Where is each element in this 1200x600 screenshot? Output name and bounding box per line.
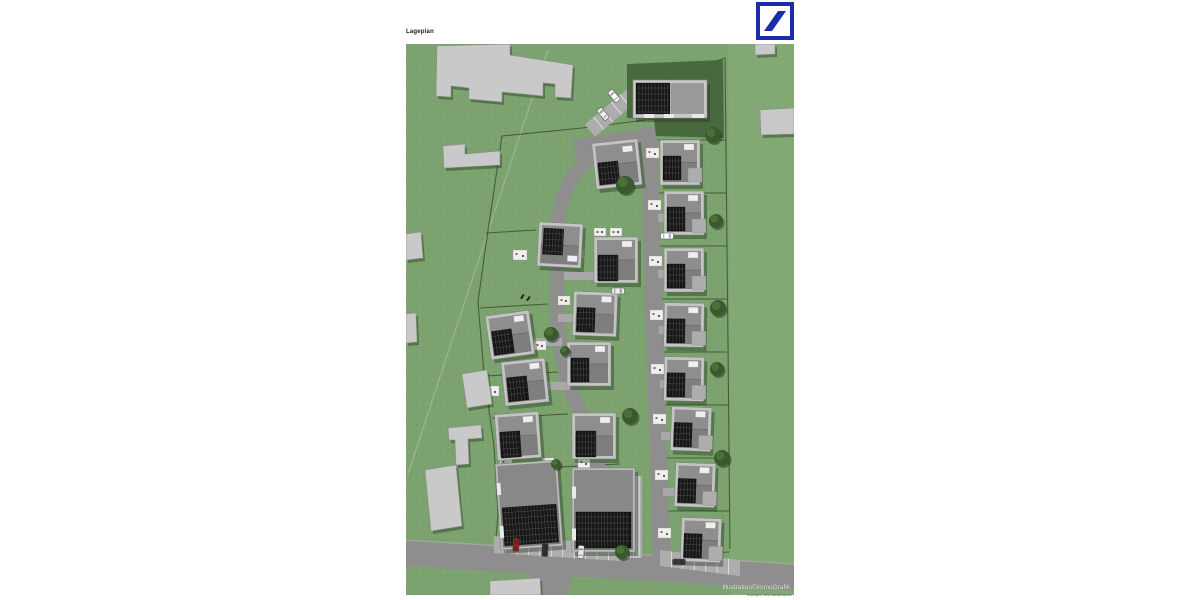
terrace-pad <box>648 200 661 210</box>
db-slash-icon <box>756 2 794 40</box>
car <box>513 538 520 551</box>
house <box>572 413 619 463</box>
driveway <box>558 314 574 322</box>
existing-building <box>406 313 417 343</box>
site-plan-map <box>406 44 794 595</box>
house <box>660 140 703 189</box>
site-plan-svg <box>406 44 794 595</box>
terrace-pad <box>650 310 663 320</box>
house <box>537 222 586 272</box>
house <box>567 342 614 390</box>
house <box>664 191 707 239</box>
terrace-pad <box>594 228 606 236</box>
car <box>612 288 625 294</box>
car <box>578 545 585 558</box>
car <box>673 559 686 565</box>
driveway <box>564 272 596 280</box>
terrace-pad <box>646 148 659 158</box>
page: Lageplan Illustration©immoGrafik Copyrig… <box>0 0 1200 600</box>
deutsche-bank-logo <box>756 2 794 40</box>
house <box>501 358 553 411</box>
house <box>670 406 715 455</box>
car <box>661 233 674 239</box>
house <box>485 310 538 364</box>
terrace-pad <box>655 470 668 480</box>
apartment-building <box>572 468 638 556</box>
existing-building <box>755 44 775 55</box>
terrace-pad <box>610 228 622 236</box>
house <box>680 517 725 566</box>
illustration-credit: Illustration©immoGrafik <box>584 584 790 591</box>
page-title: Lageplan <box>406 29 434 35</box>
house <box>594 237 641 287</box>
house <box>664 303 708 352</box>
house <box>674 462 719 511</box>
car <box>542 543 549 556</box>
terrace-pad <box>651 364 664 374</box>
terrace-pad <box>513 250 527 260</box>
copyright-microtext: Copyrights, nicht maßstabsgetreu <box>696 594 792 597</box>
terrace-pad <box>649 256 662 266</box>
existing-building <box>760 108 794 135</box>
existing-building <box>490 578 541 595</box>
commercial-hall <box>633 80 710 122</box>
house <box>664 357 708 406</box>
existing-building <box>406 232 423 260</box>
apartment-building <box>495 460 566 554</box>
terrace-pad <box>558 296 570 305</box>
terrace-pad <box>653 414 666 424</box>
existing-building <box>462 370 492 408</box>
house <box>664 248 707 296</box>
house <box>572 291 621 341</box>
house <box>494 411 544 464</box>
terrace-pad <box>658 528 671 538</box>
existing-building <box>425 465 462 531</box>
